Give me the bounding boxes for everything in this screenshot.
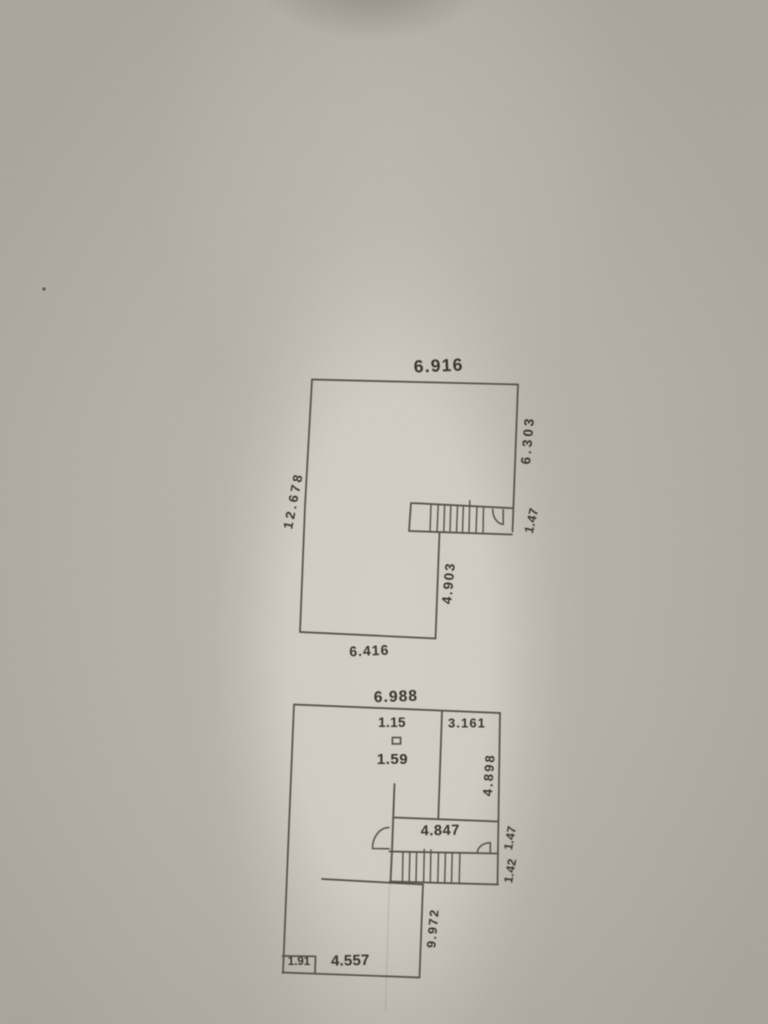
- svg-text:6.416: 6.416: [349, 642, 390, 660]
- svg-text:1.15: 1.15: [378, 715, 406, 730]
- svg-text:1.59: 1.59: [377, 751, 408, 768]
- svg-text:4.847: 4.847: [421, 823, 461, 840]
- svg-text:4.898: 4.898: [480, 753, 498, 797]
- svg-text:4.557: 4.557: [331, 952, 370, 970]
- svg-text:1.91: 1.91: [288, 956, 311, 968]
- svg-text:6.988: 6.988: [374, 688, 419, 707]
- svg-text:3.161: 3.161: [448, 715, 486, 730]
- svg-text:6.916: 6.916: [413, 354, 464, 376]
